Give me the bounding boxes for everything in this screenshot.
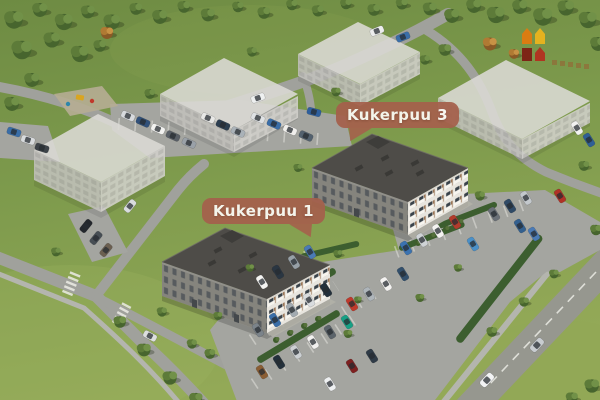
developer-logo-icon	[521, 27, 547, 63]
building-marker-kukerpuu-1[interactable]: Kukerpuu 1	[202, 198, 325, 224]
building-marker-kukerpuu-3[interactable]: Kukerpuu 3	[336, 102, 459, 128]
site-plan-render: Kukerpuu 3 Kukerpuu 1	[0, 0, 600, 400]
marker-tail	[347, 126, 371, 143]
marker-tail	[289, 222, 313, 239]
marker-label: Kukerpuu 1	[213, 202, 314, 220]
marker-label: Kukerpuu 3	[347, 106, 448, 124]
